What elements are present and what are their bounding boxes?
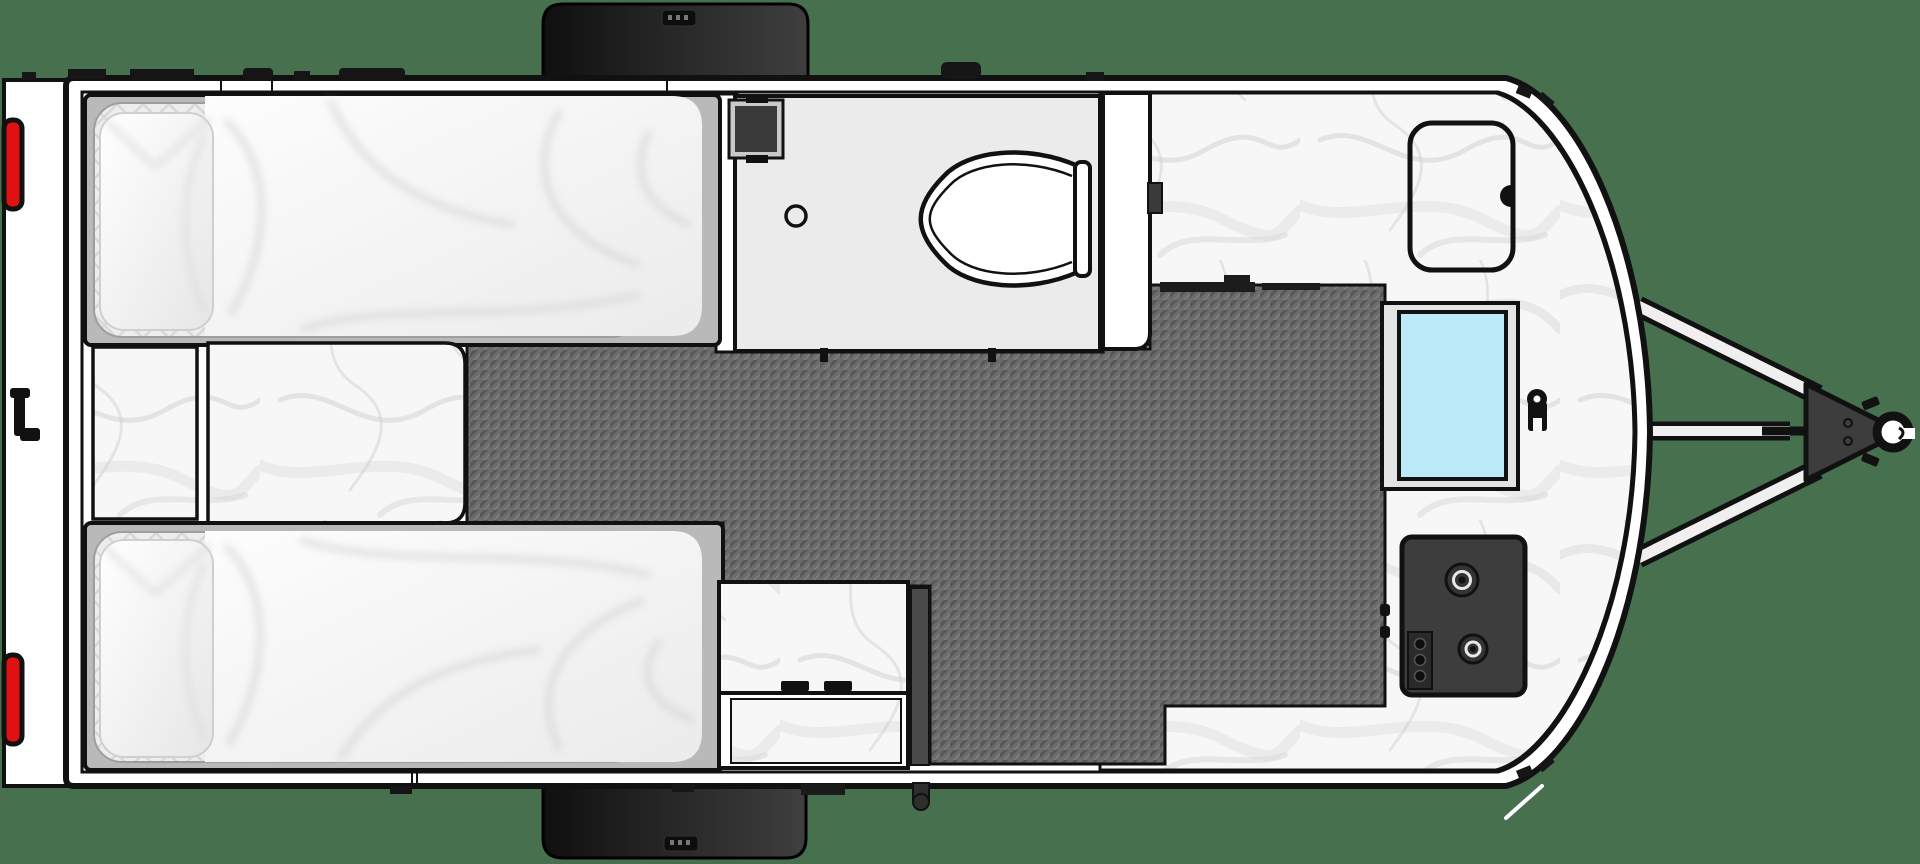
bed-top <box>85 95 720 345</box>
counter-edge-trim <box>1262 283 1320 290</box>
knob-icon <box>1415 639 1426 650</box>
pillow <box>100 113 213 330</box>
faucet-icon <box>1527 389 1547 431</box>
burner-icon <box>1459 635 1487 663</box>
counter-edge-tab <box>1224 275 1250 284</box>
drain-pipe-icon <box>913 783 929 810</box>
cooktop <box>1402 537 1525 695</box>
wheel-fender-top <box>543 4 808 84</box>
bath-door-track <box>820 348 828 362</box>
floorplan-canvas: Travel trailer floor plan, top-down view <box>0 0 1920 864</box>
burner-icon <box>1446 564 1478 596</box>
trailer-floorplan: Travel trailer floor plan, top-down view <box>0 0 1920 864</box>
pillow <box>100 540 213 757</box>
roof-vent-icon <box>941 62 981 79</box>
hitch-ball-socket-icon <box>1877 416 1915 448</box>
entry-step <box>801 784 845 795</box>
cabinet-handle-icon <box>824 681 852 691</box>
control-knobs <box>1408 632 1432 689</box>
bath-door-track <box>988 348 996 362</box>
knob-icon <box>1415 671 1426 682</box>
tail-light-bottom <box>4 655 22 744</box>
door-hinge-icon <box>1380 604 1390 616</box>
cabinet-side-panel <box>911 588 929 765</box>
knob-icon <box>1415 655 1426 666</box>
duvet <box>205 531 702 762</box>
door-hinge-icon <box>1380 626 1390 638</box>
cabinet-latch-icon <box>1148 183 1162 213</box>
duvet <box>205 96 702 336</box>
cabinet-top <box>719 582 908 693</box>
vent-fan-icon <box>729 95 783 163</box>
shower-drain-icon <box>786 206 806 226</box>
toilet-icon <box>921 153 1090 286</box>
wet-bath <box>716 94 1100 362</box>
cabinet-handle-icon <box>781 681 809 691</box>
bedside-cabinet <box>93 347 197 519</box>
tail-light-top <box>4 120 22 209</box>
bed-bottom <box>85 523 723 770</box>
sink-basin <box>1399 312 1506 479</box>
storage-hatch <box>1410 123 1513 270</box>
nightstand <box>208 343 465 523</box>
galley-cabinet <box>719 582 929 768</box>
